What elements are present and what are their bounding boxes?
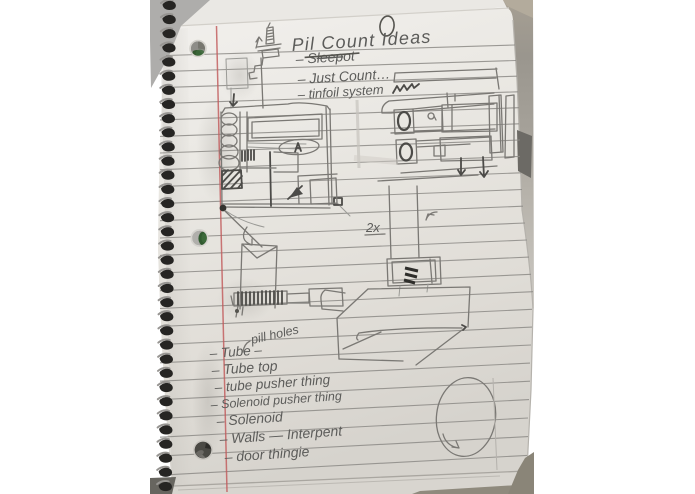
svg-text:2x: 2x xyxy=(365,220,380,235)
